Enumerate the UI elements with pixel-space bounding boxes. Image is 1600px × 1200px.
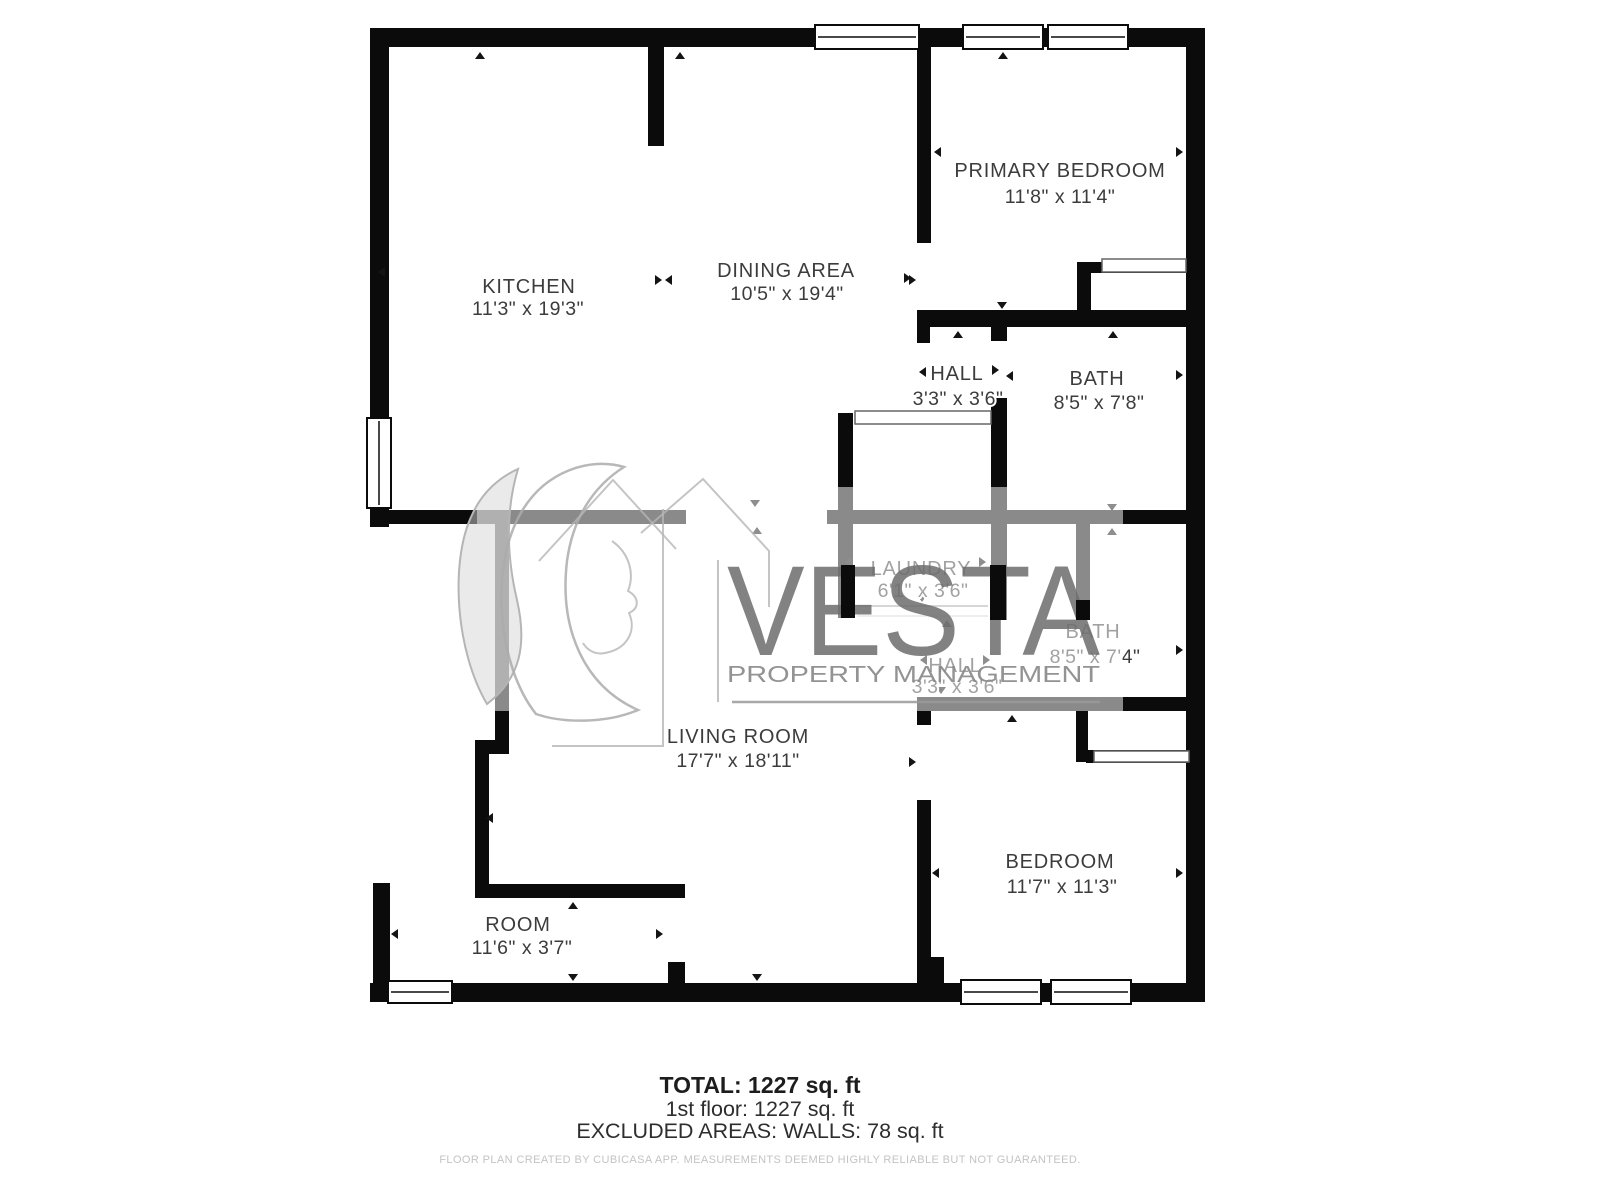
room-label-room: ROOM 11'6" x 3'7" xyxy=(472,914,573,959)
footer-total: TOTAL: 1227 sq. ft xyxy=(659,1072,860,1098)
svg-text:LIVING ROOM: LIVING ROOM xyxy=(667,726,809,748)
room-label-dining-area: DINING AREA 10'5" x 19'4" xyxy=(717,260,855,305)
svg-text:HALL: HALL xyxy=(930,363,983,385)
svg-text:11'7" x 11'3": 11'7" x 11'3" xyxy=(1007,876,1118,898)
svg-text:11'3" x 19'3": 11'3" x 19'3" xyxy=(472,298,584,320)
window-icon xyxy=(388,981,452,1003)
svg-text:ROOM: ROOM xyxy=(485,914,550,936)
svg-text:PRIMARY BEDROOM: PRIMARY BEDROOM xyxy=(954,160,1165,182)
watermark-tagline: PROPERTY MANAGEMENT xyxy=(727,661,1100,687)
svg-text:8'5" x 7'8": 8'5" x 7'8" xyxy=(1054,392,1145,414)
room-label-hall-1: HALL 3'3" x 3'6" xyxy=(913,363,1004,410)
footer-excluded: EXCLUDED AREAS: WALLS: 78 sq. ft xyxy=(576,1119,943,1143)
hall-slider-icon xyxy=(855,411,991,424)
svg-text:DINING AREA: DINING AREA xyxy=(717,260,855,282)
svg-text:17'7" x 18'11": 17'7" x 18'11" xyxy=(676,750,799,772)
floor-plan-page: KITCHEN 11'3" x 19'3" DINING AREA 10'5" … xyxy=(0,0,1600,1200)
window-icon xyxy=(961,980,1041,1004)
svg-text:KITCHEN: KITCHEN xyxy=(482,276,575,298)
footer-floor: 1st floor: 1227 sq. ft xyxy=(666,1097,855,1121)
window-icon xyxy=(1051,980,1131,1004)
watermark: VESTA PROPERTY MANAGEMENT xyxy=(459,464,1123,746)
room-label-bedroom: BEDROOM 11'7" x 11'3" xyxy=(1006,851,1118,898)
window-icon xyxy=(963,25,1043,49)
room-label-kitchen: KITCHEN 11'3" x 19'3" xyxy=(472,276,584,320)
svg-text:3'3" x 3'6": 3'3" x 3'6" xyxy=(913,388,1004,410)
floor-plan: KITCHEN 11'3" x 19'3" DINING AREA 10'5" … xyxy=(0,0,1600,1200)
svg-text:BATH: BATH xyxy=(1069,368,1124,390)
closet-slider-icon xyxy=(1102,259,1186,272)
room-label-living-room: LIVING ROOM 17'7" x 18'11" xyxy=(667,726,809,772)
window-icon xyxy=(367,418,391,508)
svg-text:11'8" x 11'4": 11'8" x 11'4" xyxy=(1005,186,1116,208)
svg-text:BEDROOM: BEDROOM xyxy=(1006,851,1115,873)
footer: TOTAL: 1227 sq. ft 1st floor: 1227 sq. f… xyxy=(439,1072,1080,1166)
svg-text:11'6" x 3'7": 11'6" x 3'7" xyxy=(472,937,573,959)
room-label-primary-bedroom: PRIMARY BEDROOM 11'8" x 11'4" xyxy=(954,160,1165,208)
window-icon xyxy=(815,25,919,49)
window-icon xyxy=(1048,25,1128,49)
svg-text:10'5" x 19'4": 10'5" x 19'4" xyxy=(730,283,843,305)
bedroom-closet-slider-icon xyxy=(1094,751,1189,762)
room-label-bath-1: BATH 8'5" x 7'8" xyxy=(1054,368,1145,414)
footer-disclaimer: FLOOR PLAN CREATED BY CUBICASA APP. MEAS… xyxy=(439,1154,1080,1166)
